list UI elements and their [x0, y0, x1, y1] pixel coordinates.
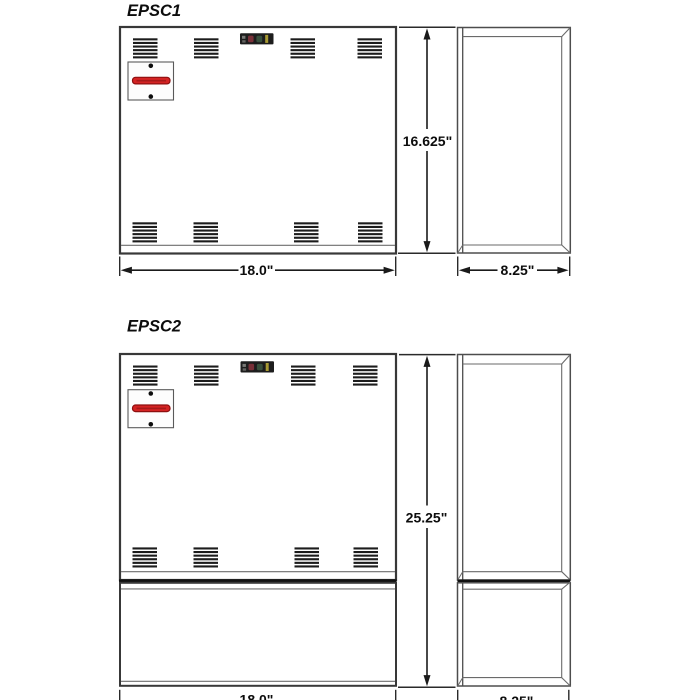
- svg-text:EPSC1: EPSC1: [127, 2, 181, 20]
- svg-text:EPSC2: EPSC2: [127, 318, 181, 336]
- svg-text:8.25": 8.25": [500, 693, 534, 700]
- svg-text:18.0": 18.0": [240, 692, 274, 700]
- svg-text:18.0": 18.0": [240, 262, 274, 278]
- svg-text:25.25": 25.25": [406, 509, 448, 525]
- svg-text:8.25": 8.25": [501, 262, 535, 278]
- svg-text:16.625": 16.625": [403, 133, 452, 149]
